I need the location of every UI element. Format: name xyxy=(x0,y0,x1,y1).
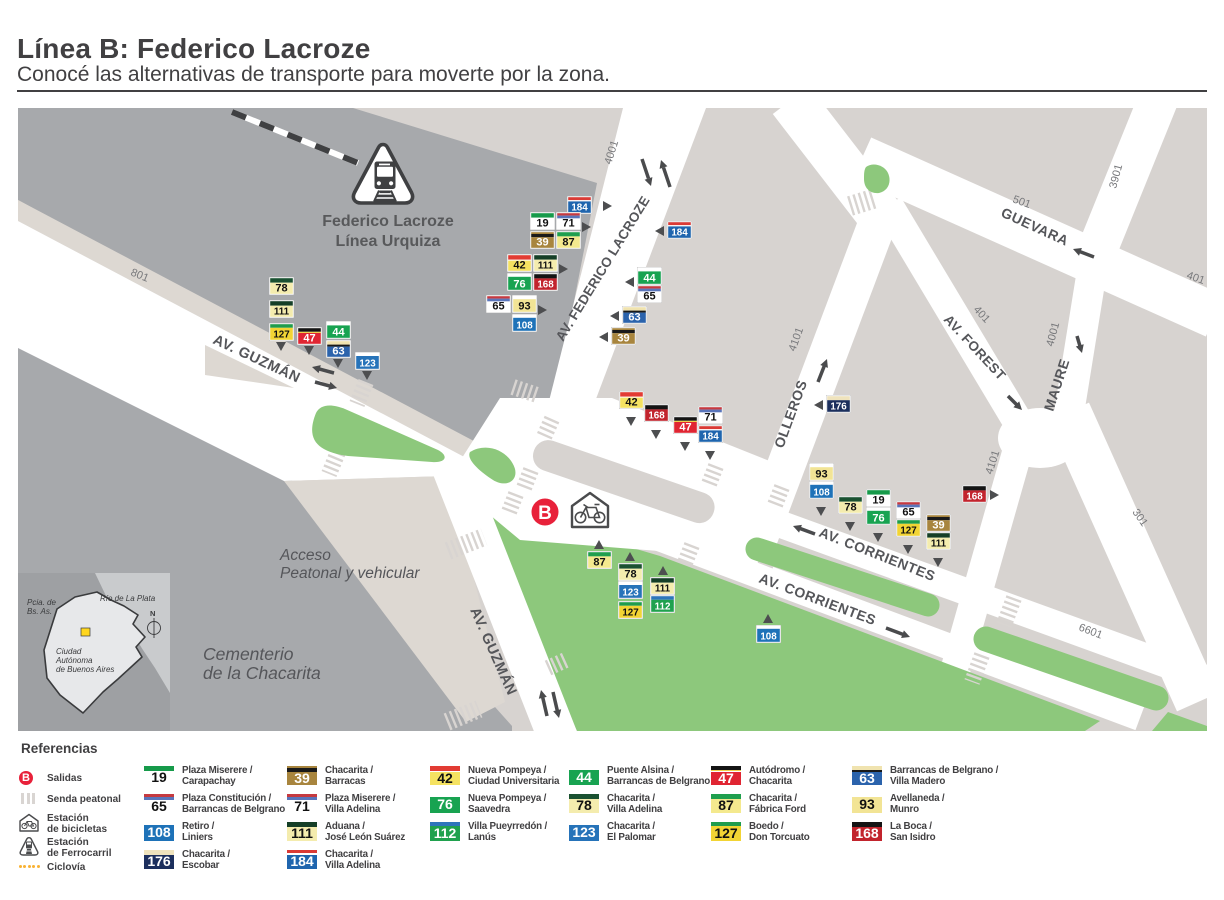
svg-text:Peatonal y vehicular: Peatonal y vehicular xyxy=(280,565,420,582)
svg-text:Acceso: Acceso xyxy=(279,547,331,564)
svg-text:Federico Lacroze: Federico Lacroze xyxy=(322,213,454,230)
svg-text:Línea Urquiza: Línea Urquiza xyxy=(336,233,441,250)
svg-text:Ciudad: Ciudad xyxy=(56,647,82,656)
svg-text:N: N xyxy=(150,609,155,618)
svg-text:B: B xyxy=(538,503,552,524)
svg-text:Autónoma: Autónoma xyxy=(55,656,93,665)
svg-text:de la Chacarita: de la Chacarita xyxy=(203,663,321,683)
svg-text:Río de La Plata: Río de La Plata xyxy=(100,594,156,603)
svg-text:de Buenos Aires: de Buenos Aires xyxy=(56,665,114,674)
svg-text:Bs. As.: Bs. As. xyxy=(27,607,52,616)
svg-text:Pcia. de: Pcia. de xyxy=(27,598,56,607)
svg-text:Cementerio: Cementerio xyxy=(203,644,294,664)
